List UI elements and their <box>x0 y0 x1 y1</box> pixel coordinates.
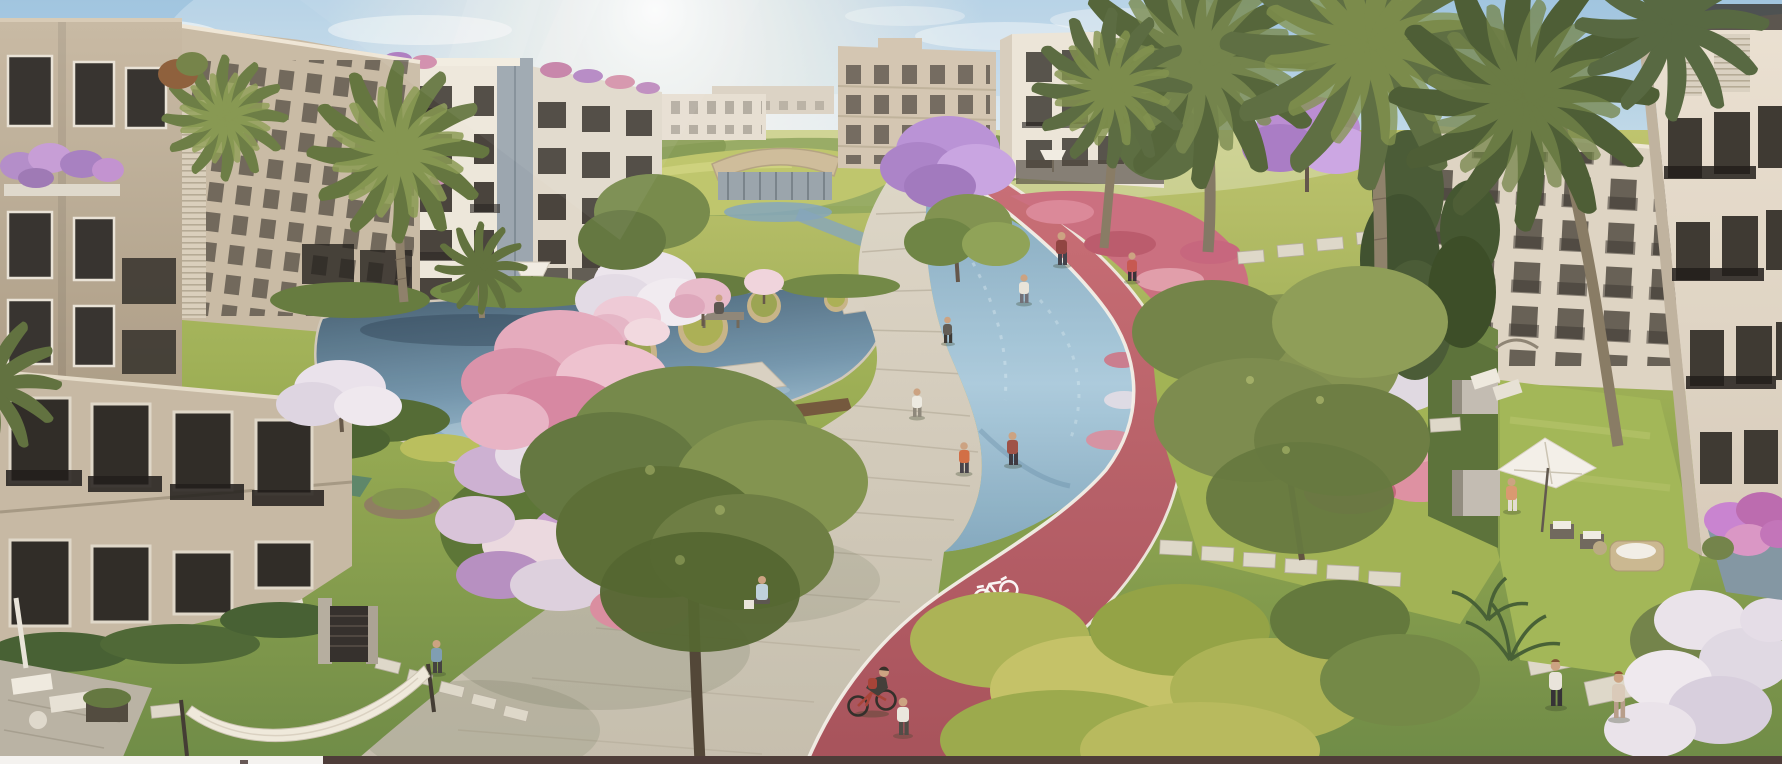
bottom-bar-light <box>0 756 323 764</box>
bottom-bar <box>0 756 1782 764</box>
warm-haze <box>0 0 1782 764</box>
bottom-bar-glyph <box>240 760 248 764</box>
bottom-bar-dark <box>323 756 1782 764</box>
compound-render-image <box>0 0 1782 764</box>
